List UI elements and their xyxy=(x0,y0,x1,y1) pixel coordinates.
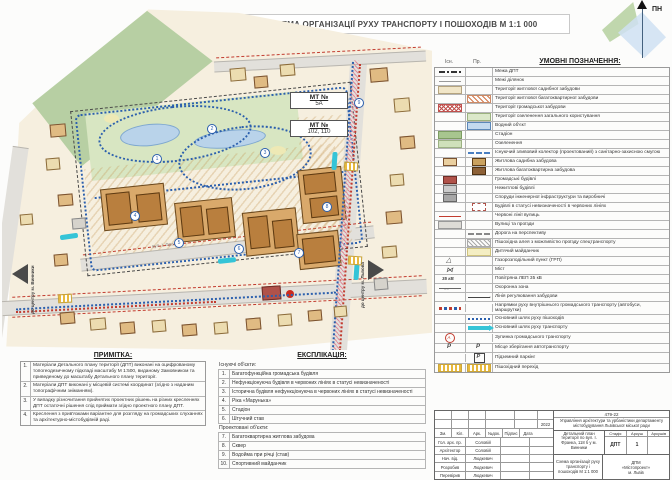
legend-swatch-icon xyxy=(468,276,490,283)
explication-number: 3. xyxy=(219,388,230,396)
legend-row: Охоронна зона xyxy=(435,284,669,293)
path-number-marker: 6 xyxy=(234,244,244,254)
explication-panel: ЕКСПЛІКАЦІЯ: Існуючі об'єкти: 1. Багатоф… xyxy=(218,352,426,469)
legend-swatch-existing xyxy=(435,275,466,283)
legend-swatch-projected xyxy=(466,140,493,148)
path-number-marker: 9 xyxy=(354,98,364,108)
legend-swatch-icon xyxy=(439,345,461,352)
legend-label: Громадські будівлі xyxy=(493,177,669,184)
existing-building xyxy=(399,135,415,149)
legend-label: Території громадської забудови xyxy=(493,105,669,112)
existing-building xyxy=(393,97,410,112)
stamp-empty-row: 2022 xyxy=(435,420,553,429)
legend-swatch-icon xyxy=(468,335,490,342)
legend-swatch-icon xyxy=(472,167,486,175)
legend-swatch-projected xyxy=(466,131,493,139)
legend-swatch-icon xyxy=(439,168,461,175)
legend-swatch-projected xyxy=(466,344,493,352)
legend-row: Основний шлях руху транспорту xyxy=(435,324,669,333)
legend-row: Пішохідна алея з можливістю проїзду спец… xyxy=(435,239,669,248)
legend-swatch-projected xyxy=(466,149,493,157)
legend-panel: Існ. Пр. УМОВНІ ПОЗНАЧЕННЯ: Межа ДПТ Меж… xyxy=(434,58,670,373)
existing-building xyxy=(385,210,402,224)
legend-swatch-existing xyxy=(435,158,466,166)
notes-panel: ПРИМІТКА: 1. Матеріали Детального плану … xyxy=(20,352,206,426)
stamp-date xyxy=(530,447,553,454)
stamp-signature xyxy=(501,447,530,454)
existing-building xyxy=(49,123,66,137)
legend-swatch-existing xyxy=(435,221,466,229)
stamp-role-row: Розробив Людкевич xyxy=(435,463,553,471)
legend-row: Зупинка громадського транспорту xyxy=(435,333,669,344)
legend-row: Повітряна ЛЕП 35 кВ xyxy=(435,275,669,284)
legend-label: Пішохідна алея з можливістю проїзду спец… xyxy=(493,240,669,247)
legend-row: Місце зберігання автотранспорту xyxy=(435,344,669,353)
existing-building xyxy=(278,313,293,326)
crosswalk xyxy=(58,294,72,304)
legend-swatch-projected xyxy=(466,334,493,342)
explication-row: 4. Ріка «Марунька» xyxy=(219,397,425,406)
legend-swatch-projected xyxy=(466,324,493,332)
legend-label: Будівлі в статусі невизначеності в черво… xyxy=(493,204,669,211)
legend-swatch-existing xyxy=(435,212,466,220)
legend-swatch-existing xyxy=(435,122,466,130)
map-canvas[interactable]: МТ № 5А МТ № 102, 110 вул. І. Франка до … xyxy=(2,6,432,350)
legend-row: Основний шлях руху пішоходів xyxy=(435,315,669,324)
legend-row: Напрямки руху внутрішнього громадського … xyxy=(435,302,669,315)
path-number-marker: 8 xyxy=(322,202,332,212)
existing-building xyxy=(390,173,405,186)
legend-swatch-icon xyxy=(467,95,491,103)
note-row: 4. Креслення з прив'язками варіантне для… xyxy=(21,411,205,425)
legend-row: Житлова багатоквартирна забудова xyxy=(435,167,669,176)
legend-swatch-projected xyxy=(466,275,493,283)
legend-label: Стадіон xyxy=(493,132,669,139)
legend-row: Дитячий майданчик xyxy=(435,248,669,257)
legend-swatch-icon xyxy=(438,86,462,94)
legend-swatch-icon xyxy=(467,364,491,372)
legend-swatch-projected xyxy=(466,221,493,229)
legend-label: Території житлової садибної забудови xyxy=(493,87,669,94)
legend-swatch-projected xyxy=(466,353,493,363)
note-text: Матеріали ДПТ виконані у місцевій систем… xyxy=(31,382,205,396)
explication-text: Багатофункційна громадська будівля xyxy=(230,370,425,378)
public-building xyxy=(262,285,282,300)
explication-text: Багатоквартирна житлова забудова xyxy=(230,433,425,441)
legend-label: Підземний паркінг xyxy=(493,355,669,362)
legend-swatch-icon xyxy=(439,267,461,274)
legend-label: Червоні лінії вулиць xyxy=(493,213,669,220)
legend-swatch-icon xyxy=(443,194,457,202)
mt-label-1: МТ № 5А xyxy=(290,92,348,109)
legend-swatch-projected xyxy=(466,77,493,85)
legend-swatch-icon xyxy=(468,285,490,292)
existing-building xyxy=(374,277,389,290)
existing-building xyxy=(382,245,398,258)
path-number-marker: 2 xyxy=(207,124,217,134)
existing-building xyxy=(254,75,269,88)
legend-label: Дитячий майданчик xyxy=(493,249,669,256)
stamp-rev-header: Дата xyxy=(520,429,536,437)
legend-swatch-existing xyxy=(435,304,466,312)
legend-swatch-existing xyxy=(435,344,466,352)
explication-number: 9. xyxy=(219,451,230,459)
legend-row: Озеленення xyxy=(435,140,669,149)
legend-row: Будівлі в статусі невизначеності в черво… xyxy=(435,203,669,212)
stamp-role: Гол. арх. пр. xyxy=(435,438,466,445)
legend-row: Території громадської забудови xyxy=(435,104,669,113)
legend-table: Межа ДПТ Межі ділянок Території житлової… xyxy=(434,67,670,373)
path-number-marker: 7 xyxy=(294,248,304,258)
explication-row: 3. Історична будівля нефункціонуюча в че… xyxy=(219,388,425,397)
legend-swatch-icon xyxy=(439,240,461,247)
legend-swatch-projected xyxy=(466,304,493,312)
title-block: 2022 Зм.Кіл.Арк.№док.ПідписДата Гол. арх… xyxy=(434,410,670,480)
legend-row: Межі ділянок xyxy=(435,77,669,86)
legend-swatch-projected xyxy=(466,185,493,193)
legend-swatch-existing xyxy=(435,266,466,274)
legend-swatch-icon xyxy=(439,81,461,82)
legend-row: Території житлової садибної забудови xyxy=(435,86,669,95)
legend-label: Лінія регулювання забудови xyxy=(493,294,669,301)
legend-label: Межа ДПТ xyxy=(493,69,669,76)
legend-label: Охоронна зона xyxy=(493,285,669,292)
legend-swatch-existing xyxy=(435,364,466,372)
legend-row: Території озеленення загального користув… xyxy=(435,113,669,122)
legend-swatch-icon xyxy=(468,69,490,76)
legend-swatch-icon xyxy=(439,216,461,217)
note-row: 2. Матеріали ДПТ виконані у місцевій сис… xyxy=(21,382,205,397)
legend-row: Червоні лінії вулиць xyxy=(435,212,669,221)
mt-label-2: МТ № 102, 110 xyxy=(290,120,348,137)
explication-text: Історична будівля нефункціонуюча в черво… xyxy=(230,388,425,396)
legend-row: Вулиці та проїзди xyxy=(435,221,669,230)
stamp-roles: Гол. арх. пр. Соловій Архітектор Соловій… xyxy=(435,438,553,479)
crosswalk xyxy=(344,162,359,172)
legend-swatch-icon xyxy=(468,318,490,321)
legend-swatch-existing xyxy=(435,194,466,202)
north-compass: ПН xyxy=(596,0,672,60)
north-label: ПН xyxy=(652,6,662,13)
legend-header: УМОВНІ ПОЗНАЧЕННЯ: xyxy=(490,58,670,65)
legend-swatch-existing xyxy=(435,140,466,148)
legend-row: Водний об'єкт xyxy=(435,122,669,131)
note-text: Креслення з прив'язками варіантне для ро… xyxy=(31,411,205,425)
existing-building xyxy=(58,193,74,206)
explication-number: 7. xyxy=(219,433,230,441)
explication-group-planned: Проектовані об'єкти: xyxy=(218,424,426,432)
legend-swatch-projected xyxy=(466,230,493,238)
direction-label-right: до центру м. Львова xyxy=(360,246,365,308)
legend-row: Межа ДПТ xyxy=(435,68,669,77)
stamp-name: Людкевич xyxy=(466,472,501,479)
explication-text: Сквер xyxy=(230,442,425,450)
stamp-rev-header: Арк. xyxy=(469,429,486,437)
legend-swatch-icon xyxy=(468,222,490,229)
stamp-role-row: Архітектор Соловій xyxy=(435,447,553,455)
legend-swatch-existing xyxy=(435,354,466,362)
legend-swatch-projected xyxy=(466,86,493,94)
legend-label: Існуючий зливовий колектор (проектований… xyxy=(493,150,669,157)
explication-row: 8. Сквер xyxy=(219,442,425,451)
legend-swatch-icon xyxy=(438,140,462,148)
legend-swatch-icon xyxy=(468,258,490,265)
legend-swatch-projected xyxy=(466,176,493,184)
stamp-name: Людкевич xyxy=(466,455,501,462)
legend-row: Міст xyxy=(435,266,669,275)
note-number: 4. xyxy=(21,411,31,425)
existing-building xyxy=(308,309,323,321)
legend-label: Території житлової багатоквартирної забу… xyxy=(493,96,669,103)
stamp-name: Соловій xyxy=(466,438,501,445)
note-number: 2. xyxy=(21,382,31,396)
existing-building xyxy=(20,213,34,225)
legend-swatch-icon xyxy=(439,276,461,283)
stamp-stage-table: СтадіяАркушАркушів ДПТ 1 xyxy=(605,431,669,455)
legend-swatch-icon xyxy=(467,248,491,256)
stamp-firm: ДПМ «Містопроект» м. Львів xyxy=(603,455,669,479)
legend-label: Озеленення xyxy=(493,141,669,148)
legend-swatch-icon xyxy=(439,71,461,73)
legend-swatch-icon xyxy=(439,96,461,103)
notes-table: 1. Матеріали Детального плану території … xyxy=(20,361,206,426)
stamp-stage-header: Аркушів xyxy=(648,431,669,436)
legend-label: Основний шлях руху пішоходів xyxy=(493,316,669,323)
stamp-signature xyxy=(501,438,530,445)
explication-row: 9. Водойма при річці (став) xyxy=(219,451,425,460)
legend-swatch-icon xyxy=(439,123,461,130)
legend-swatch-projected xyxy=(466,212,493,220)
legend-row: Житлова садибна забудова xyxy=(435,158,669,167)
stamp-stage-header: Стадія xyxy=(605,431,627,436)
legend-swatch-icon xyxy=(439,114,461,121)
legend-swatch-existing xyxy=(435,333,466,343)
explication-number: 6. xyxy=(219,415,230,423)
explication-text: Штучний став xyxy=(230,415,425,423)
explication-number: 8. xyxy=(219,442,230,450)
existing-building xyxy=(54,253,69,266)
legend-row: Нежитлові будівлі xyxy=(435,185,669,194)
legend-swatch-icon xyxy=(438,221,462,229)
legend-swatch-existing xyxy=(435,203,466,211)
legend-swatch-icon xyxy=(468,177,490,184)
legend-label: Житлова багатоквартирна забудова xyxy=(493,168,669,175)
stamp-role-row: Перевірив Людкевич xyxy=(435,472,553,479)
note-number: 1. xyxy=(21,362,31,381)
legend-row: Існуючий зливовий колектор (проектований… xyxy=(435,149,669,158)
stamp-drawing-title: Схема організації руху транспорту і пошо… xyxy=(554,455,603,479)
north-arrow-icon xyxy=(637,0,647,9)
legend-label: Території озеленення загального користув… xyxy=(493,114,669,121)
stamp-name: Людкевич xyxy=(466,463,501,470)
stamp-role: Перевірив xyxy=(435,472,466,479)
existing-building xyxy=(369,67,388,83)
legend-label: Газорозподільний пункт (ГРП) xyxy=(493,258,669,265)
planned-building xyxy=(174,197,236,243)
legend-swatch-icon xyxy=(439,150,461,157)
legend-swatch-icon xyxy=(467,122,491,130)
legend-swatch-icon xyxy=(472,203,486,211)
legend-swatch-existing xyxy=(435,324,466,332)
legend-swatch-icon xyxy=(439,316,461,323)
legend-swatch-icon xyxy=(468,213,490,220)
legend-swatch-icon xyxy=(468,141,490,148)
explication-text: Спортивний майданчик xyxy=(230,460,425,468)
existing-building xyxy=(214,321,229,334)
legend-swatch-existing xyxy=(435,167,466,175)
legend-swatch-icon xyxy=(438,364,462,372)
legend-swatch-existing xyxy=(435,86,466,94)
legend-swatch-existing xyxy=(435,68,466,76)
note-row: 1. Матеріали Детального плану території … xyxy=(21,362,205,382)
note-text: Матеріали Детального плану території (ДП… xyxy=(31,362,205,381)
existing-building xyxy=(46,157,61,170)
legend-swatch-icon xyxy=(439,231,461,238)
legend-col-projected: Пр. xyxy=(464,59,490,65)
explication-row: 5. Стадіон xyxy=(219,406,425,415)
existing-building xyxy=(229,67,246,81)
legend-swatch-projected xyxy=(466,167,493,175)
legend-label: Нежитлові будівлі xyxy=(493,186,669,193)
legend-row: Споруди інженерної інфраструктури та вир… xyxy=(435,194,669,203)
legend-swatch-projected xyxy=(466,248,493,256)
stamp-rev-header: Підпис xyxy=(503,429,520,437)
legend-swatch-existing xyxy=(435,284,466,292)
legend-swatch-projected xyxy=(466,194,493,202)
stamp-rev-header-row: Зм.Кіл.Арк.№док.ПідписДата xyxy=(435,429,553,438)
explication-header: ЕКСПЛІКАЦІЯ: xyxy=(218,352,426,359)
stamp-date xyxy=(530,438,553,445)
explication-row: 2. Нефункціонуюча будівля в червоних лін… xyxy=(219,379,425,388)
notes-header: ПРИМІТКА: xyxy=(20,352,206,359)
legend-swatch-projected xyxy=(466,315,493,323)
explication-number: 5. xyxy=(219,406,230,414)
legend-swatch-icon xyxy=(439,325,461,332)
legend-row: Дорога на перспективу xyxy=(435,230,669,239)
explication-number: 1. xyxy=(219,370,230,378)
legend-swatch-icon xyxy=(468,78,490,85)
planned-building xyxy=(297,166,346,224)
path-number-marker: 1 xyxy=(152,154,162,164)
legend-label: Пішохідний перехід xyxy=(493,365,669,372)
legend-swatch-icon xyxy=(439,258,461,265)
existing-building xyxy=(72,217,87,229)
legend-swatch-icon xyxy=(468,186,490,193)
existing-building xyxy=(60,311,76,324)
legend-swatch-projected xyxy=(466,122,493,130)
legend-swatch-projected xyxy=(466,68,493,76)
legend-swatch-icon xyxy=(439,307,461,310)
existing-building xyxy=(334,305,348,317)
stamp-role: Нач. від. xyxy=(435,455,466,462)
legend-swatch-icon xyxy=(468,345,490,352)
legend-label: Напрямки руху внутрішнього громадського … xyxy=(493,302,669,314)
legend-swatch-icon xyxy=(439,288,461,289)
legend-swatch-existing xyxy=(435,113,466,121)
legend-label: Межі ділянок xyxy=(493,78,669,85)
legend-row: Стадіон xyxy=(435,131,669,140)
existing-building xyxy=(246,317,262,330)
legend-swatch-projected xyxy=(466,284,493,292)
legend-swatch-icon xyxy=(443,185,457,193)
legend-label: Основний шлях руху транспорту xyxy=(493,325,669,332)
path-number-marker: 4 xyxy=(130,211,140,221)
legend-swatch-projected xyxy=(466,239,493,247)
legend-label: Вулиці та проїзди xyxy=(493,222,669,229)
legend-row: Території житлової багатоквартирної забу… xyxy=(435,95,669,104)
legend-swatch-projected xyxy=(466,104,493,112)
path-number-marker: 5 xyxy=(174,238,184,248)
legend-row: Лінія регулювання забудови xyxy=(435,293,669,302)
legend-swatch-existing xyxy=(435,77,466,85)
legend-swatch-icon xyxy=(468,105,490,112)
legend-swatch-existing xyxy=(435,185,466,193)
legend-swatch-icon xyxy=(467,113,491,121)
legend-swatch-projected xyxy=(466,293,493,301)
stamp-role: Архітектор xyxy=(435,447,466,454)
stamp-project-title: Детальний план території по вул. І. Фран… xyxy=(554,431,605,455)
stamp-signature xyxy=(501,472,530,479)
direction-arrow-left-icon xyxy=(12,264,28,284)
stamp-organization: Управління архітектури та урбаністики де… xyxy=(554,418,669,431)
legend-swatch-icon xyxy=(468,305,490,312)
legend-swatch-icon xyxy=(472,158,486,166)
legend-swatch-icon xyxy=(474,353,485,363)
legend-swatch-projected xyxy=(466,95,493,103)
explication-text: Нефункціонуюча будівля в червоних лініях… xyxy=(230,379,425,387)
legend-swatch-existing xyxy=(435,315,466,323)
stamp-right: 479-22 Управління архітектури та урбаніс… xyxy=(554,411,669,479)
explication-number: 10. xyxy=(219,460,230,468)
legend-swatch-existing xyxy=(435,149,466,157)
stamp-firm-line: м. Львів xyxy=(628,470,644,475)
stamp-empty-row xyxy=(435,411,553,420)
legend-swatch-icon xyxy=(468,195,490,202)
legend-swatch-projected xyxy=(466,257,493,265)
legend-row: Громадські будівлі xyxy=(435,176,669,185)
stamp-stage-value: ДПТ xyxy=(605,437,627,455)
legend-swatch-icon xyxy=(468,87,490,94)
explication-table-existing: 1. Багатофункційна громадська будівля 2.… xyxy=(218,369,426,424)
legend-swatch-icon xyxy=(439,294,461,301)
legend-swatch-icon xyxy=(467,239,491,247)
legend-label: Водний об'єкт xyxy=(493,123,669,130)
path-number-marker: 3 xyxy=(260,148,270,158)
stamp-date xyxy=(530,472,553,479)
legend-swatch-projected xyxy=(466,203,493,211)
direction-label-left: до центру м. Винники xyxy=(30,252,35,314)
legend-swatch-icon xyxy=(439,355,461,362)
stamp-rev-header: Зм. xyxy=(435,429,452,437)
note-text: У випадку різночитання прийнятих проектн… xyxy=(31,397,205,411)
legend-label: Житлова садибна забудова xyxy=(493,159,669,166)
note-number: 3. xyxy=(21,397,31,411)
legend-row: Підземний паркінг xyxy=(435,353,669,364)
explication-text: Водойма при річці (став) xyxy=(230,451,425,459)
explication-row: 6. Штучний став xyxy=(219,415,425,424)
legend-swatch-icon xyxy=(445,333,455,343)
legend-swatch-existing xyxy=(435,95,466,103)
stamp-sheet-value: 1 xyxy=(627,437,649,455)
legend-swatch-existing xyxy=(435,257,466,265)
legend-col-existing: Існ. xyxy=(434,59,464,65)
explication-row: 1. Багатофункційна громадська будівля xyxy=(219,370,425,379)
legend-swatch-projected xyxy=(466,113,493,121)
stamp-stage-header: Аркуш xyxy=(627,431,649,436)
legend-swatch-projected xyxy=(466,158,493,166)
explication-row: 10. Спортивний майданчик xyxy=(219,460,425,469)
stamp-signature xyxy=(501,455,530,462)
